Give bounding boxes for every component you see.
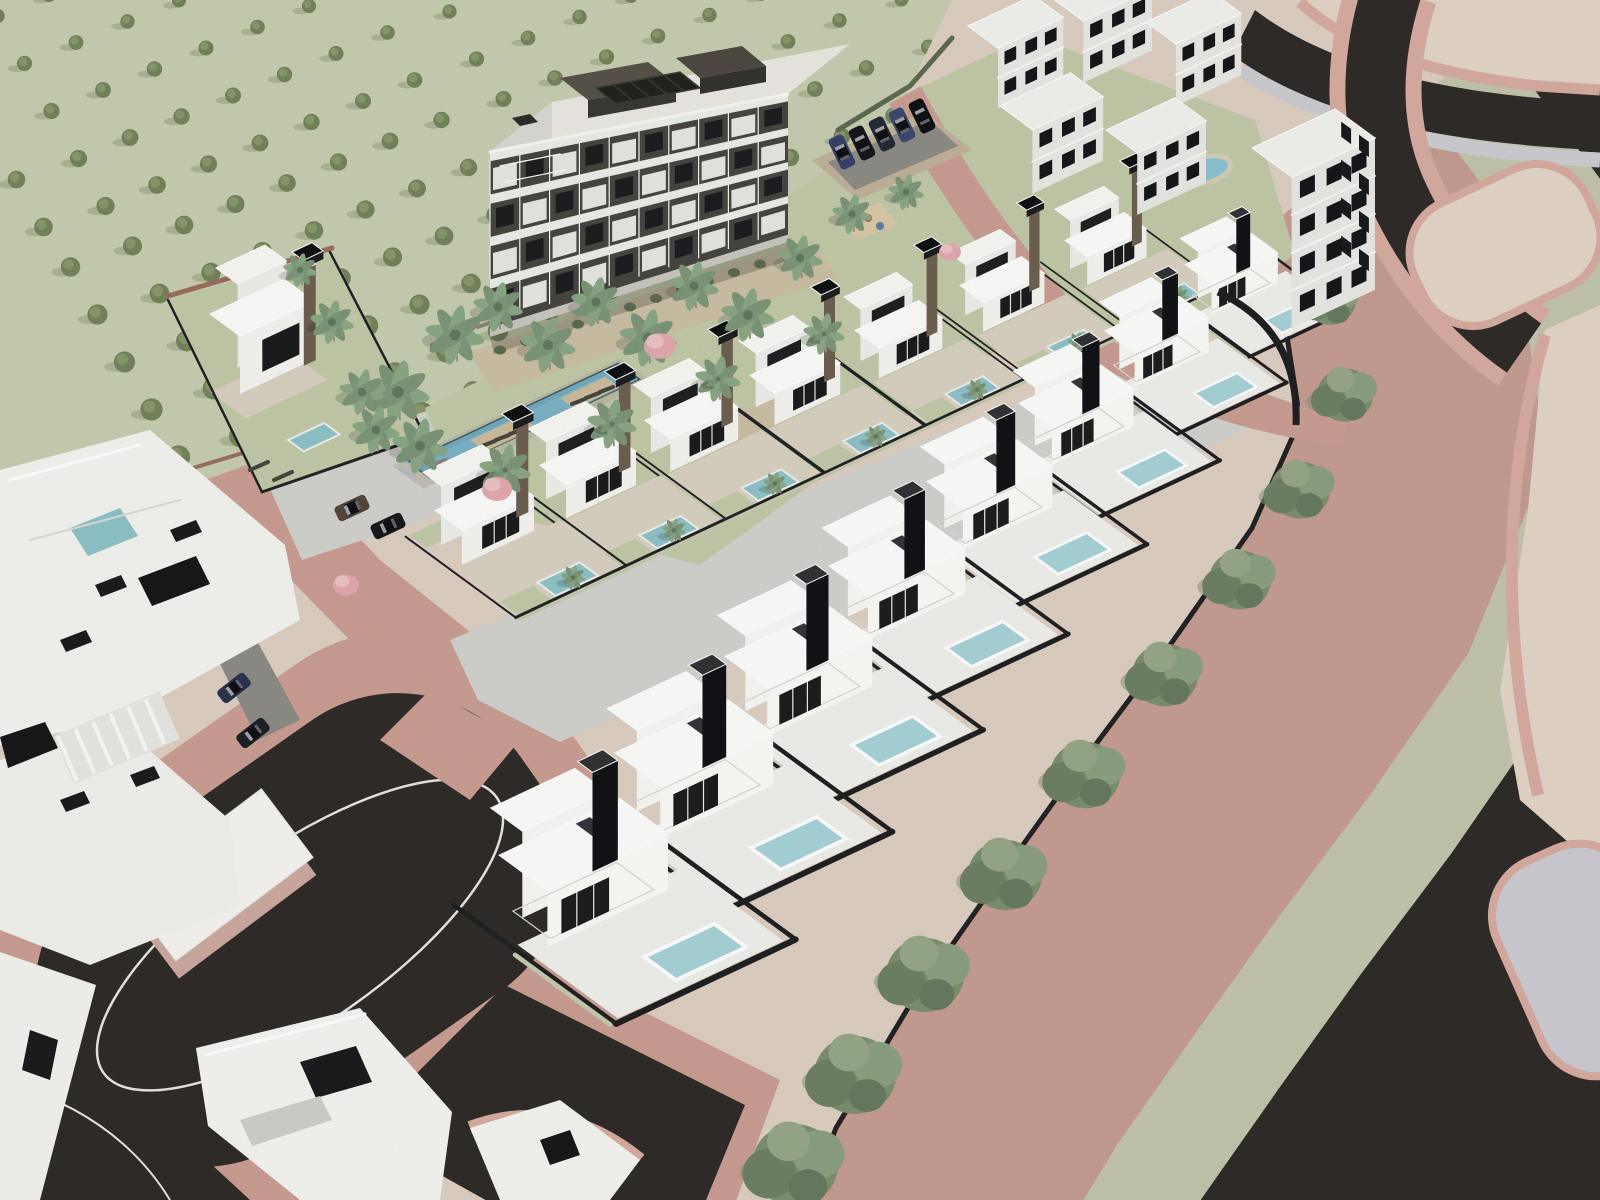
film-grain — [0, 0, 1600, 1200]
render-viewport — [0, 0, 1600, 1200]
site-plan-3d-render — [0, 0, 1600, 1200]
